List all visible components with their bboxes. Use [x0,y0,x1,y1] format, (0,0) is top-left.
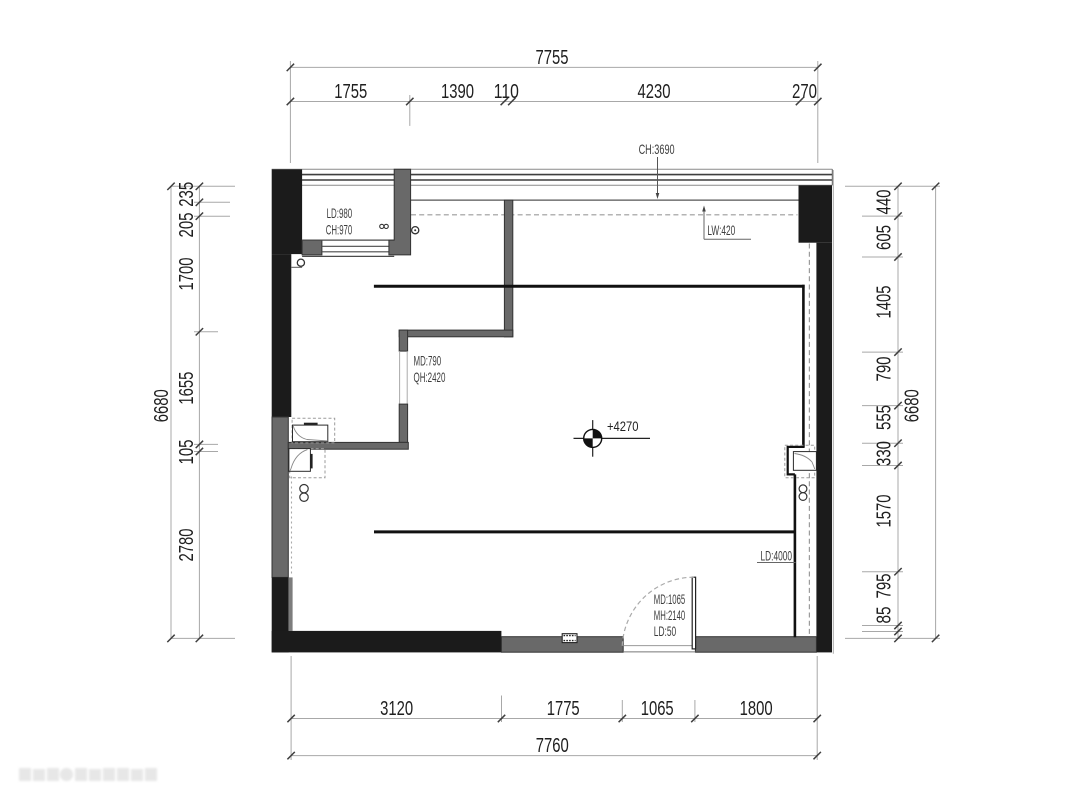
svg-text:CH:3690: CH:3690 [639,141,675,157]
svg-text:2780: 2780 [176,529,198,562]
svg-text:85: 85 [874,607,896,624]
svg-text:MD:790: MD:790 [414,353,442,369]
svg-text:MH:2140: MH:2140 [654,607,686,623]
svg-text:6680: 6680 [151,389,173,422]
svg-text:1800: 1800 [740,698,773,720]
svg-text:+4270: +4270 [607,418,639,434]
svg-text:CH:970: CH:970 [326,222,353,238]
svg-text:270: 270 [792,81,817,103]
svg-text:1065: 1065 [641,698,674,720]
svg-text:1405: 1405 [874,286,896,319]
svg-text:440: 440 [874,190,896,215]
svg-text:7760: 7760 [536,735,569,757]
svg-text:LD:50: LD:50 [654,623,677,639]
svg-text:235: 235 [176,182,198,207]
svg-text:1655: 1655 [176,372,198,405]
svg-text:QH:2420: QH:2420 [414,369,446,385]
svg-text:605: 605 [874,225,896,250]
svg-text:MD:1065: MD:1065 [654,591,686,607]
svg-text:1700: 1700 [176,258,198,291]
svg-text:1755: 1755 [334,81,367,103]
svg-text:7755: 7755 [536,47,569,69]
svg-text:555: 555 [874,405,896,430]
svg-text:4230: 4230 [638,81,671,103]
svg-text:LD:980: LD:980 [327,205,353,221]
svg-text:1570: 1570 [874,495,896,528]
svg-text:6680: 6680 [902,389,924,422]
svg-text:205: 205 [176,213,198,238]
svg-text:795: 795 [874,574,896,599]
svg-text:3120: 3120 [380,698,413,720]
svg-text:1390: 1390 [441,81,474,103]
svg-text:330: 330 [874,441,896,466]
svg-text:105: 105 [176,440,198,465]
svg-text:LW:420: LW:420 [707,222,735,238]
svg-text:790: 790 [874,357,896,382]
svg-text:1775: 1775 [547,698,580,720]
svg-text:110: 110 [494,81,519,103]
svg-text:LD:4000: LD:4000 [761,548,793,564]
